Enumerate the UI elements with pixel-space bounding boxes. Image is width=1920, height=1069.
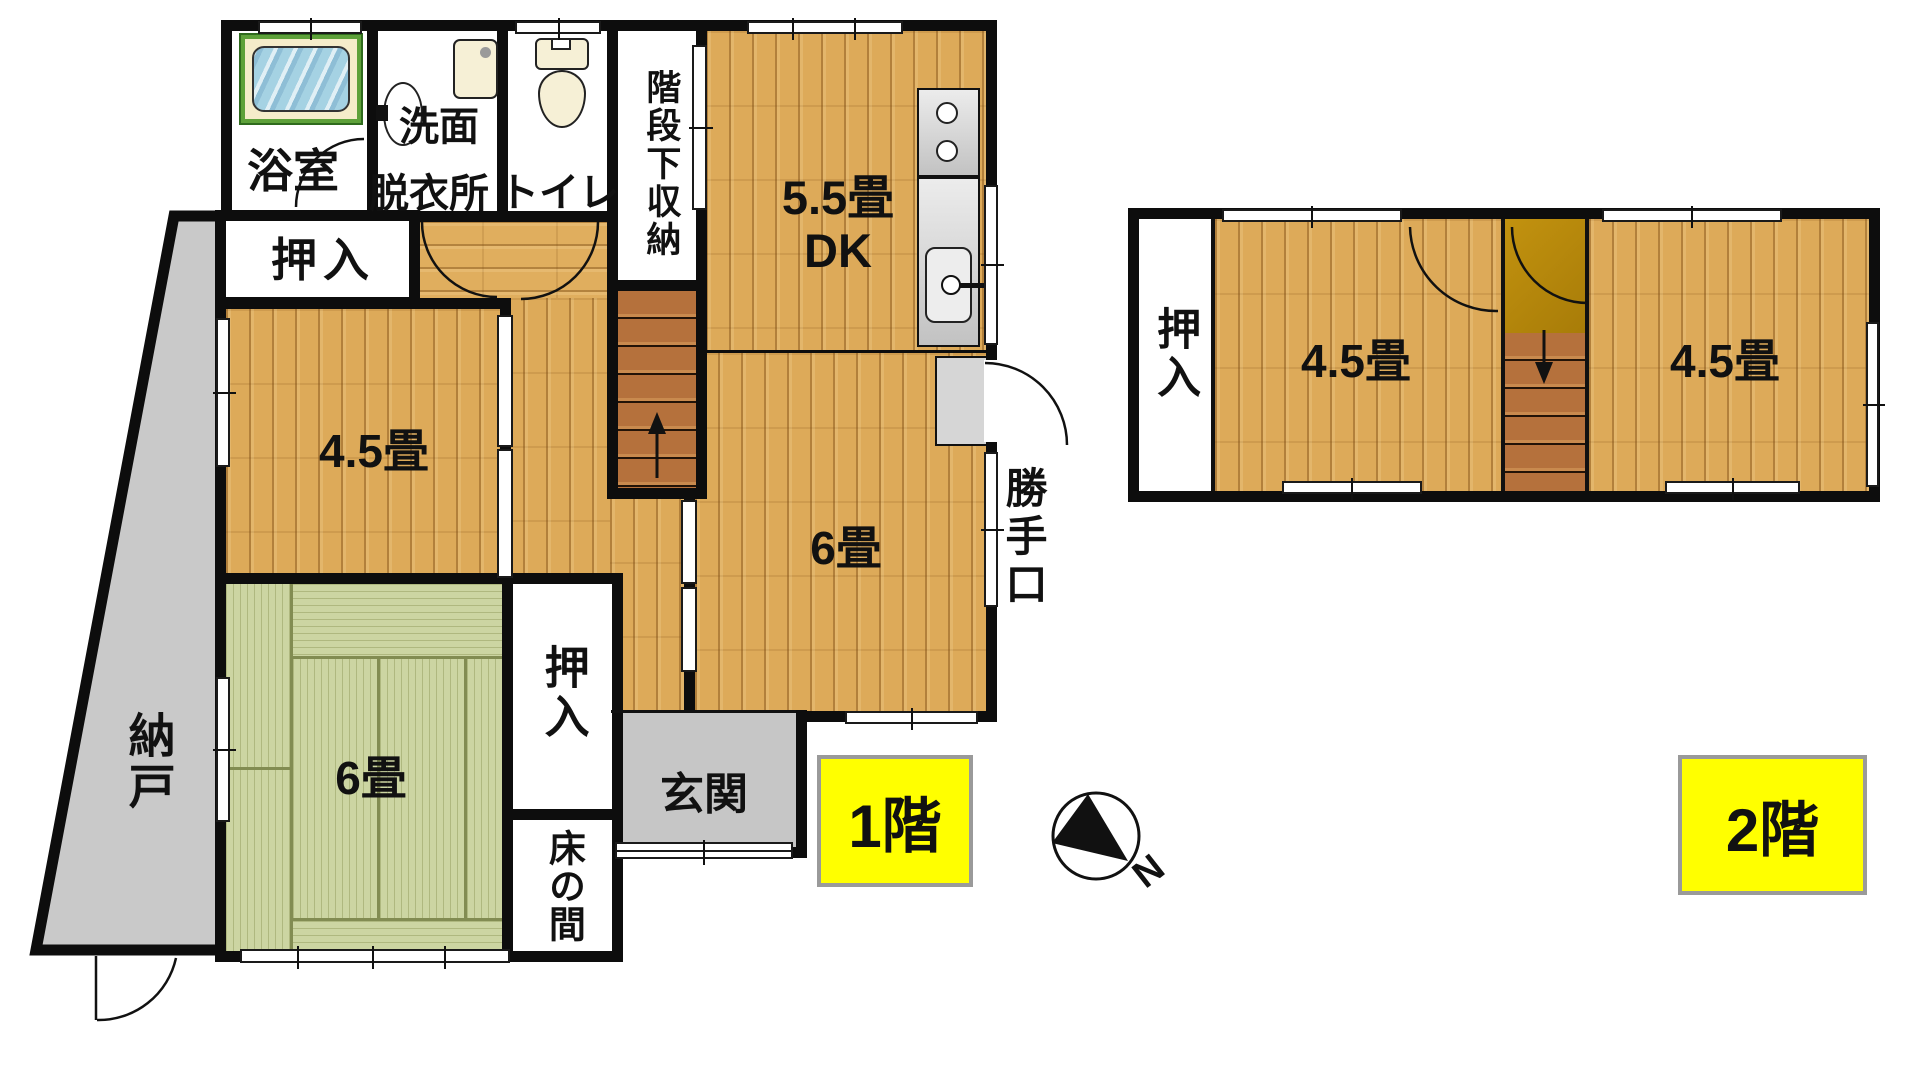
back-door-opening [984, 360, 999, 442]
stove-icon [917, 88, 980, 177]
window-2f-top-left [1222, 209, 1402, 222]
window-room6-right [984, 452, 998, 607]
north-arrow-icon: N [1052, 793, 1173, 897]
window-tatami-left [216, 677, 230, 822]
window-toilet-top [515, 21, 601, 34]
washing-machine-icon [453, 39, 498, 99]
kitchen-counter [917, 177, 980, 347]
closet-bottom [502, 573, 623, 820]
entrance-sliding-door [615, 842, 793, 859]
window-dk-right [984, 185, 998, 345]
stairs-2f-left-wall [1501, 219, 1505, 491]
window-room6-bottom [845, 711, 978, 724]
sliding-door-room6 [681, 500, 697, 584]
entrance-step-line [611, 710, 796, 713]
window-2f-right [1866, 322, 1879, 487]
storage-room-label: 納戸 [118, 706, 178, 818]
north-label: N [1125, 847, 1172, 897]
toilet-tank-icon [535, 38, 589, 70]
window-bath-top [258, 21, 362, 34]
sink-icon [383, 82, 423, 146]
faucet-icon [941, 275, 961, 295]
sliding-door-room45-b [497, 449, 513, 578]
bathtub-icon [239, 33, 363, 125]
window-2f-bottom-right [1665, 481, 1800, 494]
storage-room-polygon [36, 216, 221, 950]
stairs-1f [607, 280, 707, 499]
sink-tap-icon [376, 105, 388, 121]
closet-2f-partition [1211, 219, 1215, 491]
hallway-middle [500, 298, 620, 588]
window-2f-bottom-left [1282, 481, 1422, 494]
window-dk-top [747, 21, 903, 34]
entrance-genkan [600, 710, 807, 858]
back-door-landing [935, 356, 986, 446]
room-4-5-west [215, 298, 511, 585]
sliding-door-dk [692, 45, 707, 210]
stairs-2f-right-wall [1585, 219, 1589, 491]
floorplan-canvas: 浴室 洗面 脱衣所 トイレ 階段下収納 5.5畳 DK 押入 4.5畳 6畳 勝… [0, 0, 1920, 1069]
room-4-5-2f-right [1589, 219, 1869, 491]
window-room45-left [216, 318, 230, 467]
window-tatami-bottom [240, 949, 510, 963]
stairs-2f-treads [1505, 333, 1585, 491]
stairs-2f-landing [1505, 219, 1585, 333]
closet-2f [1139, 219, 1211, 491]
closet-top [215, 210, 420, 308]
floor2-badge: 2階 [1678, 755, 1867, 895]
window-2f-top-right [1602, 209, 1782, 222]
tatami-room-6 [215, 573, 524, 962]
back-door-label: 勝手口 [998, 452, 1048, 624]
hallway-upper [408, 210, 619, 310]
door-arc-storage [97, 958, 176, 1020]
sliding-door-room6-b [681, 587, 697, 672]
tokonoma [502, 809, 623, 962]
room-4-5-2f-left [1215, 219, 1501, 491]
sliding-door-room45 [497, 315, 513, 447]
floor1-badge: 1階 [817, 755, 973, 887]
